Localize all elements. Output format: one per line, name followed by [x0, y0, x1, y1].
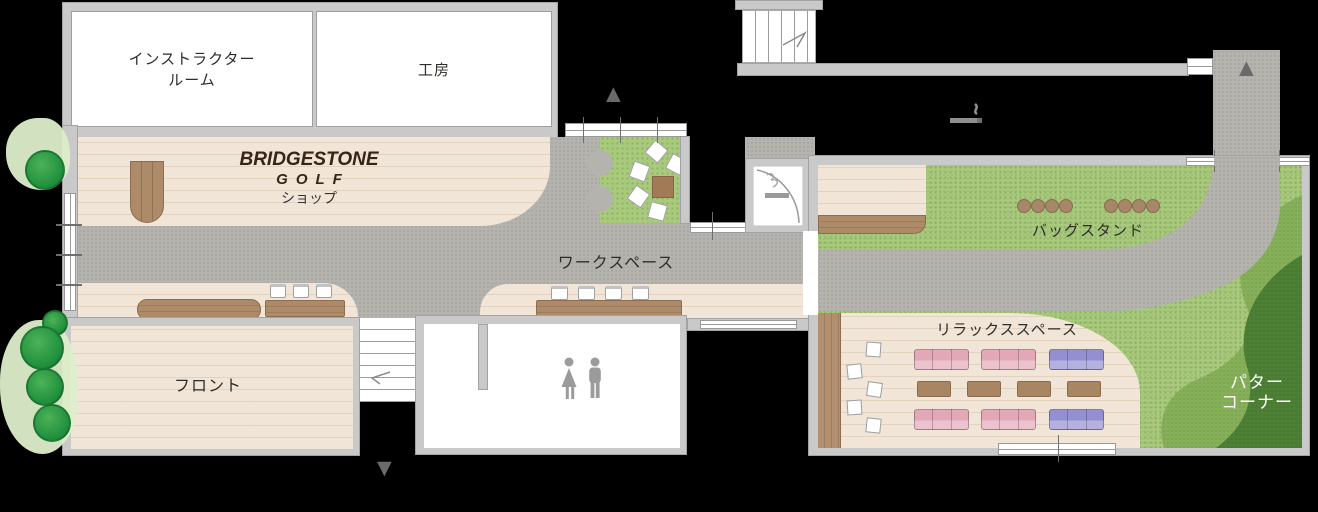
- sofa-pink: [981, 349, 1036, 370]
- sofa-purple: [1049, 349, 1104, 370]
- room-instructor: インストラクター ルーム: [71, 11, 313, 127]
- shop-label: ショップ: [281, 188, 337, 208]
- upper-stairs-cap: [735, 0, 823, 10]
- entrance-arrow-northeast-icon: ▲: [1234, 56, 1259, 81]
- sofa-pink: [981, 409, 1036, 430]
- tree: [25, 150, 65, 190]
- relax-table: [1067, 381, 1101, 397]
- door-swing-icon: [753, 166, 803, 226]
- workshop-label: 工房: [418, 59, 450, 80]
- sofa-pink: [914, 409, 969, 430]
- window-tick: [712, 212, 713, 240]
- shop-logo: BRIDGESTONE GOLF ショップ: [224, 146, 394, 210]
- relax-table: [967, 381, 1001, 397]
- front-side-counter: [265, 300, 345, 317]
- shop-brand-line2: GOLF: [268, 171, 350, 188]
- window-left: [64, 193, 76, 311]
- golf-bag: [1146, 199, 1160, 213]
- golf-bag: [1132, 199, 1146, 213]
- window-center: [690, 222, 747, 233]
- opening-west-wing: [803, 231, 818, 315]
- counter-chair: [316, 284, 332, 298]
- wall-band-long: [737, 63, 1189, 76]
- putter-label-line2: コーナー: [1221, 393, 1293, 413]
- window-tick: [56, 284, 82, 286]
- smoking-icon: [948, 100, 988, 128]
- window-east: [700, 320, 797, 329]
- lounge-table: [652, 176, 674, 198]
- window-band-end: [1187, 58, 1213, 75]
- bagstand-label: バッグスタンド: [1032, 220, 1144, 241]
- relax-chair: [846, 363, 862, 379]
- shop-brand-line1: BRIDGESTONE: [239, 149, 378, 171]
- restroom-floor: [424, 324, 680, 448]
- lower-stairs-arrow-icon: [364, 366, 394, 390]
- workspace-chair: [551, 286, 568, 300]
- relax-chair: [866, 381, 883, 398]
- relax-space-label: リラックススペース: [936, 319, 1078, 340]
- room-workshop: 工房: [316, 11, 552, 127]
- void-notch: [690, 136, 745, 222]
- front-label: フロント: [174, 372, 242, 396]
- golf-bag: [1017, 199, 1031, 213]
- relax-chair: [865, 341, 881, 357]
- shop-display-shelf: [130, 161, 164, 223]
- exit-arrow-bottom-icon: ▼: [372, 456, 397, 481]
- sofa-purple: [1049, 409, 1104, 430]
- wing-interior: バッグスタンド リラックススペース パター コーナー: [818, 165, 1302, 448]
- counter-chair: [270, 284, 286, 298]
- golf-bag: [1031, 199, 1045, 213]
- workspace-chair: [605, 286, 622, 300]
- top-rooms-block: インストラクター ルーム 工房: [62, 2, 558, 138]
- tree: [33, 404, 71, 442]
- restroom: [415, 315, 687, 455]
- floor-plan: インストラクター ルーム 工房 BRIDGESTONE GOLF ショップ: [0, 0, 1318, 512]
- wall-segment: [680, 136, 690, 224]
- relax-table: [1017, 381, 1051, 397]
- lower-stairs: [360, 318, 416, 402]
- upper-stairs: [742, 10, 816, 63]
- putter-corner-label: パター コーナー: [1221, 373, 1293, 413]
- workspace-chair: [578, 286, 595, 300]
- relax-chair: [846, 399, 862, 415]
- window-tick: [583, 117, 584, 143]
- window-tick: [56, 224, 82, 226]
- upper-stairs-arrow-icon: [781, 23, 815, 49]
- relax-table: [917, 381, 951, 397]
- grass-scallop: [587, 186, 613, 212]
- door-tick: [1058, 435, 1059, 462]
- bagstand-wood-block: [818, 165, 926, 215]
- golf-bag: [1118, 199, 1132, 213]
- entrance-arrow-top-icon: ▲: [601, 82, 626, 107]
- workspace-label: ワークスペース: [558, 249, 675, 273]
- sofa-pink: [914, 349, 969, 370]
- restroom-icon: [557, 356, 611, 404]
- path-crossing: [1214, 156, 1280, 166]
- grass-scallop: [587, 150, 613, 176]
- counter-chair: [293, 284, 309, 298]
- relax-counter: [818, 313, 841, 448]
- instructor-room-label-line1: インストラクター: [128, 48, 255, 69]
- tree: [20, 326, 64, 370]
- window-tick: [657, 117, 658, 143]
- putter-label-line1: パター: [1221, 373, 1293, 393]
- tree: [26, 368, 64, 406]
- workspace-chair: [632, 286, 649, 300]
- bagstand-bench: [818, 215, 926, 234]
- golf-bag: [1104, 199, 1118, 213]
- golf-bag: [1059, 199, 1073, 213]
- relax-chair: [865, 417, 881, 433]
- restroom-partition: [478, 324, 488, 390]
- golf-bag: [1045, 199, 1059, 213]
- right-wing: バッグスタンド リラックススペース パター コーナー: [808, 155, 1310, 456]
- wing-door-south: [998, 443, 1116, 455]
- entry-door-box: [745, 158, 811, 233]
- window-tick: [620, 117, 621, 143]
- window-tick: [56, 254, 82, 256]
- instructor-room-label-line2: ルーム: [168, 69, 216, 90]
